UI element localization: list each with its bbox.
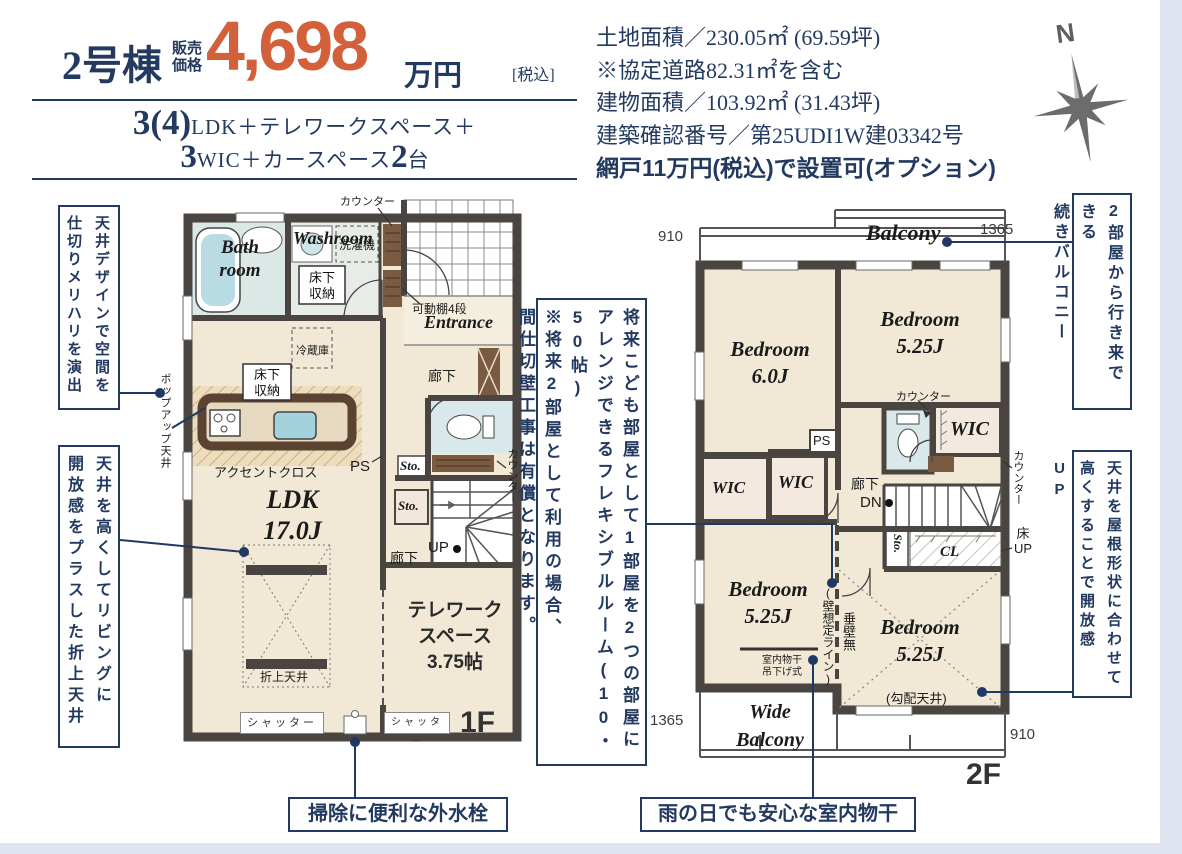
layout-big-3: 2 <box>391 139 408 175</box>
land-area: 土地面積／230.05㎡ (69.59坪) <box>596 22 996 55</box>
up-dot <box>453 545 461 553</box>
fridge-label: 冷蔵庫 <box>296 342 329 358</box>
note-col: ※将来2部屋として利用の場合、 <box>538 308 564 756</box>
ldk-label: LDK 17.0J <box>230 484 355 546</box>
kitchen-sink-icon <box>274 412 316 439</box>
bathroom-label: Bath room <box>200 236 280 282</box>
note-col: 続きバルコニー <box>1046 203 1073 400</box>
note-indoor-drying: 雨の日でも安心な室内物干 <box>640 797 916 832</box>
note-col: 開放感をプラスした折上天井 <box>59 455 87 738</box>
stairs-2f <box>884 485 1001 529</box>
hallway-label-1f-b: 廊下 <box>390 548 418 568</box>
note-flexible-room: 将来こども部屋として1部屋を2つの部屋に アレンジできるフレキシブルルーム(10… <box>536 298 647 766</box>
washer-label: 洗濯機 <box>339 236 375 253</box>
dn-label: DN <box>860 494 882 511</box>
accent-cloth-label: アクセントクロス <box>214 462 317 481</box>
screen-option-note: 網戸11万円(税込)で設置可(オプション) <box>596 152 996 185</box>
building-number: 2号棟 <box>62 33 162 91</box>
layout-line-2: 3WIC＋カースペース2台 <box>32 139 577 176</box>
confirmation-number: 建築確認番号／第25UDI1W建03342号 <box>596 120 996 153</box>
no-drop-wall-label: 垂壁無 <box>839 612 858 651</box>
sto-label-1f-b: Sto. <box>398 498 419 514</box>
cl-label: CL <box>940 544 959 561</box>
wic-mid-label: WIC <box>778 472 813 493</box>
shutter-label-b: シャッター <box>384 712 450 734</box>
price-label: 販売価格 <box>172 41 202 75</box>
floor-label-2f: 2F <box>966 758 1001 792</box>
hallway-label-1f-a: 廊下 <box>428 366 456 386</box>
underfloor-storage-label-2: 床下 収納 <box>244 367 290 399</box>
shutter-label-a: シャッター <box>240 712 324 734</box>
note-connected-balcony: 2部屋から行き来できる 続きバルコニー <box>1072 193 1132 410</box>
popup-ceiling-label: ポップアップ天井 <box>157 373 173 469</box>
note-roof-shape-ceiling: 天井を屋根形状に合わせて 高くすることで開放感UP <box>1072 450 1132 698</box>
layout-big-1: 3(4) <box>133 103 191 142</box>
dim-910-top: 910 <box>658 228 683 245</box>
counter-label-2f-top: カウンター <box>896 388 951 404</box>
note-col: 天井を高くしてリビングに <box>87 455 115 738</box>
layout-big-2: 3 <box>180 139 197 175</box>
wood-counter-strips <box>383 224 402 307</box>
bedroom-525-sw-label: Bedroom 5.25J <box>708 576 828 630</box>
bedroom-525-se-label: Bedroom 5.25J <box>860 614 980 668</box>
note-col: 天井デザインで空間を <box>87 215 115 400</box>
bedroom-60-label: Bedroom 6.0J <box>710 336 830 390</box>
layout-end-2: 台 <box>408 148 429 172</box>
assumed-wall-label: (壁想定ライン) <box>820 586 837 686</box>
wic-left-label: WIC <box>712 478 745 498</box>
layout-line-1: 3(4)LDK＋テレワークスペース＋ <box>32 103 577 143</box>
wic-ne-label: WIC <box>950 418 989 441</box>
note-ceiling-design: 天井デザインで空間を 仕切りメリハリを演出 <box>58 205 120 410</box>
road-note: ※協定道路82.31㎡を含む <box>596 55 996 88</box>
underfloor-storage-label-1: 床下 収納 <box>300 270 344 302</box>
note-col: 高くすることで開放感UP <box>1046 460 1100 688</box>
note-outdoor-tap: 掃除に便利な外水栓 <box>288 797 508 832</box>
slope-ceiling-label: (勾配天井) <box>886 688 947 707</box>
ps-label-2f: PS <box>813 433 830 448</box>
note-col: 間仕切壁工事は有償となります。 <box>512 308 538 756</box>
sto-label-1f-a: Sto. <box>400 458 421 474</box>
floor-label-1f: 1F <box>460 706 495 740</box>
flyer-canvas: 2号棟 販売価格 4,698 万円 [税込] 3(4)LDK＋テレワークスペース… <box>0 0 1182 854</box>
layout-mid-2: WIC＋カースペース <box>197 148 391 172</box>
note-col: 天井を屋根形状に合わせて <box>1100 460 1127 688</box>
note-col: アレンジできるフレキシブルルーム(10・50帖) <box>564 308 616 756</box>
wide-balcony-label: Wide Balcony <box>715 698 825 754</box>
bedroom-525-ne-label: Bedroom 5.25J <box>860 306 980 360</box>
property-info: 土地面積／230.05㎡ (69.59坪) ※協定道路82.31㎡を含む 建物面… <box>596 22 996 185</box>
right-edge-strip <box>1160 0 1182 854</box>
dim-910-bottom: 910 <box>1010 726 1035 743</box>
layout-rest-1: LDK＋テレワークスペース＋ <box>191 115 476 139</box>
up-label: UP <box>428 539 449 556</box>
bottom-edge-strip <box>0 843 1182 854</box>
dim-1365-bottom: 1365 <box>650 712 683 729</box>
toilet-counter <box>432 455 494 472</box>
tax-note: [税込] <box>512 61 555 85</box>
dim-1365-top: 1365 <box>980 221 1013 238</box>
building-area: 建物面積／103.92㎡ (31.43坪) <box>596 87 996 120</box>
balcony-label: Balcony <box>866 220 941 246</box>
header-rule-bottom <box>32 178 577 180</box>
price-unit: 万円 <box>404 52 462 94</box>
note-col: 2部屋から行き来できる <box>1073 203 1127 400</box>
compass-rose-icon <box>1024 46 1138 171</box>
note-col: 仕切りメリハリを演出 <box>59 215 87 400</box>
oriage-ceiling-label: 折上天井 <box>260 668 308 685</box>
header-rule-top <box>32 99 577 101</box>
toilet-icon-2f <box>898 429 918 457</box>
sto-label-2f: Sto. <box>890 534 905 553</box>
entrance-label: Entrance <box>424 312 493 333</box>
floor-up-label: 床 UP <box>1008 526 1038 556</box>
dn-dot <box>885 499 893 507</box>
indoor-drying-label: 室内物干 吊下げ式 <box>752 655 812 679</box>
ps-label-1f: PS <box>350 458 370 475</box>
price-value: 4,698 <box>206 6 366 86</box>
hallway-label-2f: 廊下 <box>851 474 879 494</box>
toilet-icon-1f <box>447 415 481 439</box>
counter-label-1f-top: カウンター <box>340 193 395 209</box>
note-high-ceiling-living: 天井を高くしてリビングに 開放感をプラスした折上天井 <box>58 445 120 748</box>
note-col: 将来こども部屋として1部屋を2つの部屋に <box>616 308 642 756</box>
counter-label-2f-right: カウンター <box>1010 450 1026 505</box>
outdoor-tap-icon <box>344 716 366 734</box>
telework-space-label: テレワーク スペース 3.75帖 <box>400 598 510 676</box>
